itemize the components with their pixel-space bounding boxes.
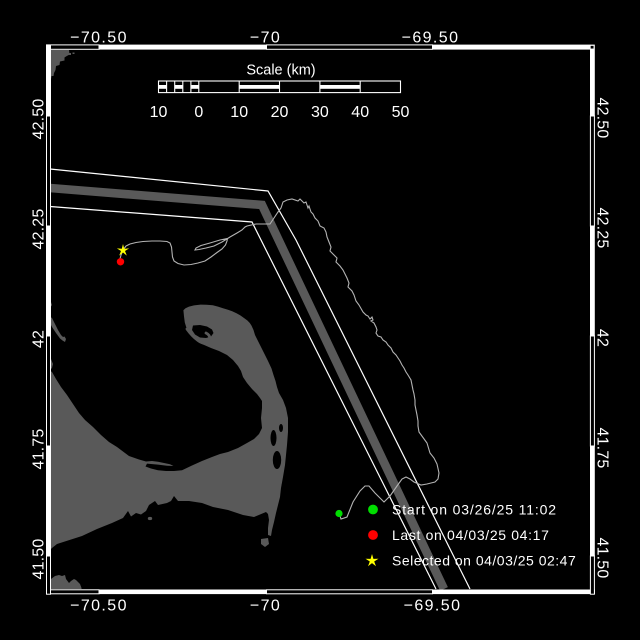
svg-text:42.50: 42.50 (594, 97, 611, 138)
svg-text:42: 42 (31, 330, 48, 348)
svg-text:42.25: 42.25 (31, 208, 48, 249)
svg-text:20: 20 (271, 104, 289, 121)
svg-text:Last on 04/03/25 04:17: Last on 04/03/25 04:17 (392, 527, 550, 543)
svg-text:−69.50: −69.50 (404, 598, 462, 615)
svg-text:−69.50: −69.50 (402, 29, 460, 46)
svg-text:42.25: 42.25 (594, 207, 611, 248)
svg-text:−70: −70 (250, 598, 281, 615)
svg-text:42: 42 (594, 329, 611, 347)
svg-text:10: 10 (150, 104, 168, 121)
svg-text:40: 40 (351, 104, 369, 121)
svg-text:Start on 03/26/25 11:02: Start on 03/26/25 11:02 (392, 502, 557, 518)
svg-text:−70.50: −70.50 (70, 598, 128, 615)
svg-text:−70: −70 (250, 29, 281, 46)
svg-text:Scale (km): Scale (km) (246, 63, 315, 79)
svg-text:41.75: 41.75 (594, 427, 611, 468)
svg-text:30: 30 (311, 104, 329, 121)
svg-text:−70.50: −70.50 (70, 29, 128, 46)
svg-text:50: 50 (392, 104, 410, 121)
svg-text:10: 10 (230, 104, 248, 121)
svg-text:0: 0 (194, 104, 203, 121)
svg-text:41.50: 41.50 (31, 538, 48, 579)
svg-text:42.50: 42.50 (31, 98, 48, 139)
svg-text:41.75: 41.75 (31, 428, 48, 469)
svg-text:41.50: 41.50 (594, 537, 611, 578)
svg-text:Selected on 04/03/25 02:47: Selected on 04/03/25 02:47 (392, 553, 576, 569)
